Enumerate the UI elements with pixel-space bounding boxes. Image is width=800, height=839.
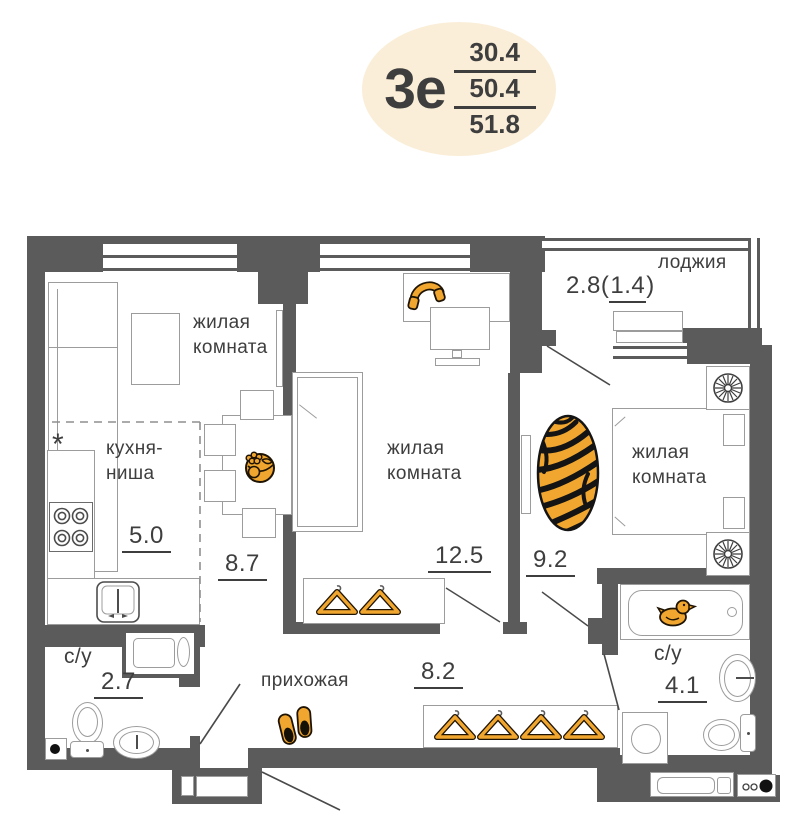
leader-line-12-5 xyxy=(446,588,500,622)
room-area-hallway: 8.2 xyxy=(414,658,463,689)
tiger-rug-icon xyxy=(536,414,600,532)
hanger-icon xyxy=(566,711,602,737)
hanger-icon xyxy=(362,586,398,612)
floor-plan-page: 3е 30.4 50.4 51.8 xyxy=(0,0,800,839)
room-name-bathroom2: с/у xyxy=(654,640,682,668)
room-area-bathroom1: 2.7 xyxy=(94,668,143,699)
room-area-kitchen: 5.0 xyxy=(122,522,171,553)
plan-lines-overlay xyxy=(0,0,800,839)
fruit-bowl-icon xyxy=(240,449,276,485)
hanger-icon xyxy=(319,586,355,612)
room-area-living3: 9.2 xyxy=(526,546,575,577)
wardrobe-hangers xyxy=(423,705,618,748)
room-name-living1: жилая комната xyxy=(193,310,268,361)
slippers-icon xyxy=(276,704,316,748)
rubber-duck-icon xyxy=(656,597,696,627)
loggia-area-total: 2.8( xyxy=(566,272,609,299)
room-name-loggia: лоджия xyxy=(658,250,727,275)
room-area-bathroom2: 4.1 xyxy=(658,672,707,703)
loggia-area-reduced: 1.4 xyxy=(609,272,646,303)
headphones-icon xyxy=(407,279,445,311)
room-name-living2: жилая комната xyxy=(387,436,462,487)
kitchen-note-star: * xyxy=(52,428,64,462)
loggia-area-close: ) xyxy=(646,272,655,299)
wardrobe-hangers xyxy=(303,578,445,624)
hanger-icon xyxy=(437,711,473,737)
room-name-hallway: прихожая xyxy=(261,668,349,693)
entrance-door-swing-line xyxy=(200,684,240,744)
hanger-icon xyxy=(523,711,559,737)
bathroom2-door-swing-line xyxy=(604,654,619,710)
hanger-icon xyxy=(480,711,516,737)
leader-line-9-2 xyxy=(542,592,588,626)
outer-door-swing-line xyxy=(262,772,340,810)
room-name-bathroom1: с/у xyxy=(64,643,92,671)
room-area-living2: 12.5 xyxy=(428,542,491,573)
room-area-loggia: 2.8(1.4) xyxy=(566,272,655,303)
balcony-door-swing-line xyxy=(547,346,610,385)
room-area-living1: 8.7 xyxy=(218,550,267,581)
room-name-living3: жилая комната xyxy=(632,440,707,491)
room-name-kitchen: кухня- ниша xyxy=(106,436,163,487)
